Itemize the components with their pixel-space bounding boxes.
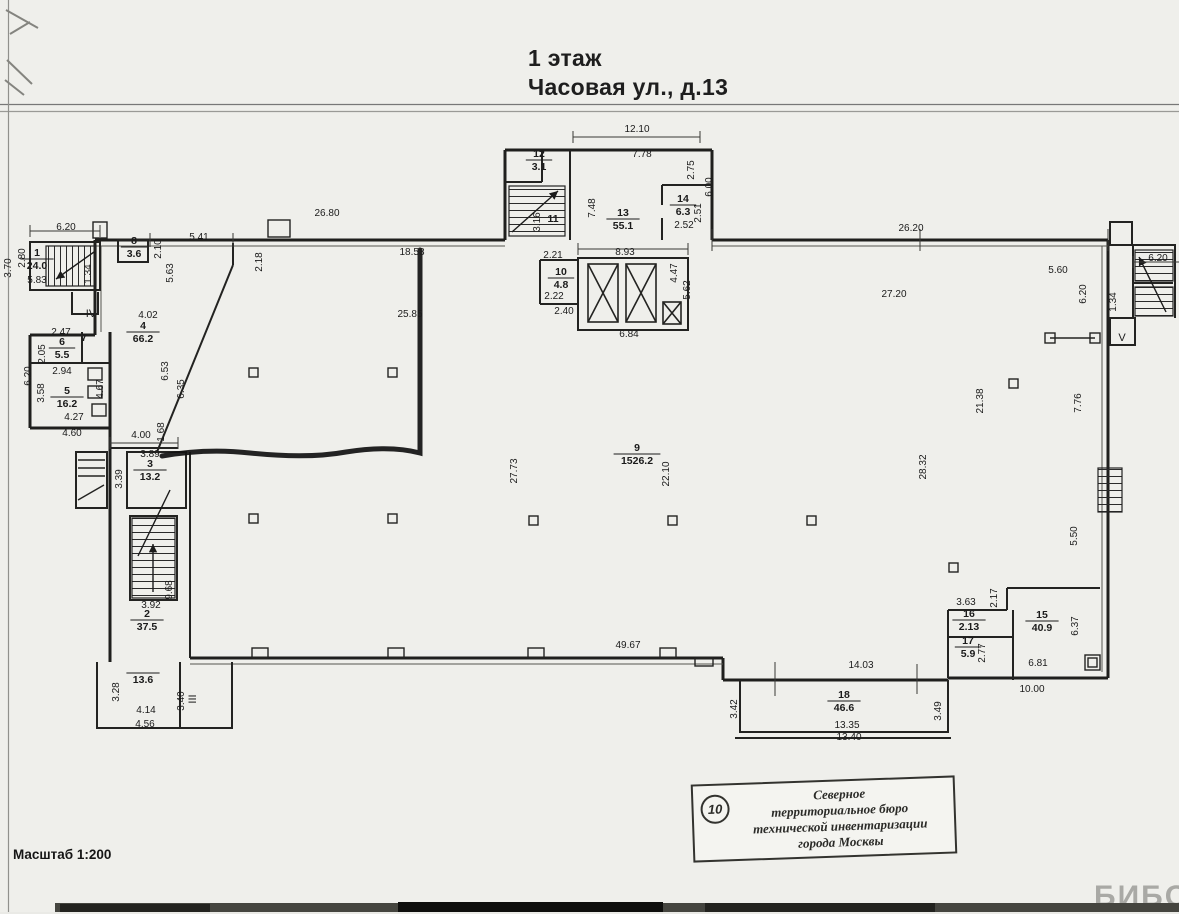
dimension-label: 14.03 [848, 660, 873, 671]
dimension-label: 26.80 [314, 208, 339, 219]
scan-bottom-bar-segment [60, 904, 210, 912]
room-area: 2.13 [959, 621, 980, 633]
room-area: 37.5 [137, 621, 158, 633]
room-number: 1 [34, 247, 40, 259]
dimension-label: 4.60 [62, 428, 82, 439]
dimension-label: 5.50 [1069, 526, 1080, 546]
room-number: 2 [144, 608, 150, 620]
elevator-shafts [588, 264, 681, 324]
page-title: 1 этаж Часовая ул., д.13 [528, 44, 728, 103]
room-area: 66.2 [133, 333, 154, 345]
dimension-label: 21.38 [975, 388, 986, 413]
dimension-label: 6.20 [1078, 284, 1089, 304]
dimension-label: 3.16 [532, 212, 543, 232]
room-area: 55.1 [613, 220, 634, 232]
dimension-label: 2.05 [37, 344, 48, 364]
address-title: Часовая ул., д.13 [528, 73, 728, 102]
dimension-label: 9.68 [164, 580, 175, 600]
dimension-label: 6.20 [56, 222, 76, 233]
dimension-label: 7.48 [587, 198, 598, 218]
room-number: 5 [64, 385, 70, 397]
room-number: 11 [547, 213, 558, 225]
room-number: 17 [962, 635, 974, 647]
dimension-label: 6.53 [160, 361, 171, 381]
stairs [46, 186, 1173, 598]
dimension-label: 49.67 [615, 640, 640, 651]
dimension-label: 5.41 [189, 232, 209, 243]
room-number: 4 [140, 320, 146, 332]
room-area: 4.8 [554, 279, 569, 291]
room-area: 1526.2 [621, 455, 653, 467]
dimension-label: 2.52 [674, 220, 694, 231]
dimension-label: 2.75 [686, 160, 697, 180]
dimension-label: 3.70 [3, 258, 14, 278]
room-area: 5.9 [961, 648, 976, 660]
room-number: 8 [131, 235, 137, 247]
dimension-label: 2.21 [543, 250, 563, 261]
dimension-label: 12.10 [624, 124, 649, 135]
dimension-label: 4.47 [669, 263, 680, 283]
room-area: 46.6 [834, 702, 855, 714]
room-number: 10 [555, 266, 567, 278]
dimension-label: 2.18 [254, 252, 265, 272]
dimension-label: 3.42 [729, 699, 740, 719]
dimension-label: 25.85 [397, 309, 422, 320]
room-area: 13.6 [133, 674, 154, 686]
stamp-number-badge: 10 [700, 794, 730, 824]
dimension-label: 7.78 [632, 149, 652, 160]
dimension-label: 7.76 [1073, 393, 1084, 413]
stair-direction-arrows [56, 191, 1166, 592]
dimension-lines [30, 131, 1179, 696]
dimension-label: 4.56 [135, 719, 155, 730]
room-number: 16 [963, 608, 975, 620]
room-area: 40.9 [1032, 622, 1053, 634]
entrance-label: III [187, 694, 199, 703]
dimension-label: 5.83 [27, 275, 47, 286]
scale-label: Масштаб 1:200 [13, 847, 111, 862]
stamp-text: Северное территориальное бюро техническо… [731, 783, 949, 854]
dimension-label: 3.28 [111, 682, 122, 702]
dimension-label: 3.49 [933, 701, 944, 721]
dimension-label: 26.20 [898, 223, 923, 234]
room-number: 14 [677, 193, 689, 205]
room-area: 6.3 [676, 206, 691, 218]
room-number: 15 [1036, 609, 1048, 621]
dimension-label: 1.68 [156, 422, 167, 442]
dimension-label: 5.60 [1048, 265, 1068, 276]
dimension-label: 18.58 [399, 247, 424, 258]
dimension-label: 3.40 [176, 691, 187, 711]
dimension-label: 27.73 [509, 458, 520, 483]
dimension-label: 6.00 [704, 177, 715, 197]
dimension-label: 6.37 [1070, 616, 1081, 636]
dimension-label: 6.81 [1028, 658, 1048, 669]
room-area: 3.1 [532, 161, 547, 173]
dimension-label: 3.63 [956, 597, 976, 608]
room-number: 13 [617, 207, 629, 219]
plan-labels: 6.203.702.805.831.345.412.1026.802.1818.… [3, 124, 1168, 743]
dimension-label: 4.14 [136, 705, 156, 716]
dimension-label: 1.34 [1108, 292, 1119, 312]
room-area: 24.0 [27, 260, 48, 272]
dimension-label: 6.84 [619, 329, 639, 340]
entrance-label: IV [86, 308, 97, 320]
room-number: 7 [81, 332, 87, 344]
room-area: 5.5 [55, 349, 70, 361]
columns-and-fixtures [78, 220, 1100, 670]
dimension-label: 27.20 [881, 289, 906, 300]
room-number: 9 [634, 442, 640, 454]
dimension-label: 6.35 [176, 379, 187, 399]
dimension-label: 28.32 [918, 454, 929, 479]
scan-bottom-bar-segment [398, 902, 663, 912]
dimension-label: 8.93 [615, 247, 635, 258]
dimension-label: 10.00 [1019, 684, 1044, 695]
dimension-label: 22.10 [661, 461, 672, 486]
dimension-label: 2.94 [52, 366, 72, 377]
dimension-label: 4.67 [95, 379, 106, 399]
dimension-label: 1.34 [83, 264, 94, 284]
dimension-label: 13.40 [836, 732, 861, 743]
dimension-label: 4.00 [131, 430, 151, 441]
hand-drawn-marker-line [162, 250, 420, 456]
room-area: 13.2 [140, 471, 161, 483]
room-area: 3.6 [127, 248, 142, 260]
dimension-label: 2.22 [544, 291, 564, 302]
dimension-label: 2.40 [554, 306, 574, 317]
room-area: 16.2 [57, 398, 78, 410]
dimension-label: 13.35 [834, 720, 859, 731]
room-number: 6 [59, 336, 65, 348]
dimension-label: 3.58 [36, 383, 47, 403]
dimension-label: 4.27 [64, 412, 84, 423]
wall-inner-lines [95, 246, 1108, 672]
dimension-label: 2.77 [977, 643, 988, 663]
room-number: 12 [533, 148, 545, 160]
bti-stamp: 10 Северное территориальное бюро техниче… [691, 775, 958, 863]
dimension-label: 5.63 [165, 263, 176, 283]
dimension-label: 6.20 [23, 366, 34, 386]
dimension-label: 2.17 [989, 588, 1000, 608]
dimension-label: 2.10 [153, 239, 164, 259]
scan-bottom-bar-segment [705, 903, 935, 912]
floor-plan-drawing: 6.203.702.805.831.345.412.1026.802.1818.… [0, 0, 1179, 912]
floor-title: 1 этаж [528, 44, 728, 73]
dimension-label: 2.51 [693, 203, 704, 223]
dimension-label: 5.62 [682, 280, 693, 300]
room-number: 18 [838, 689, 850, 701]
entrance-label: V [1118, 332, 1126, 344]
dimension-label: 6.20 [1148, 253, 1168, 264]
room-number: 3 [147, 458, 153, 470]
dimension-label: 3.39 [114, 469, 125, 489]
